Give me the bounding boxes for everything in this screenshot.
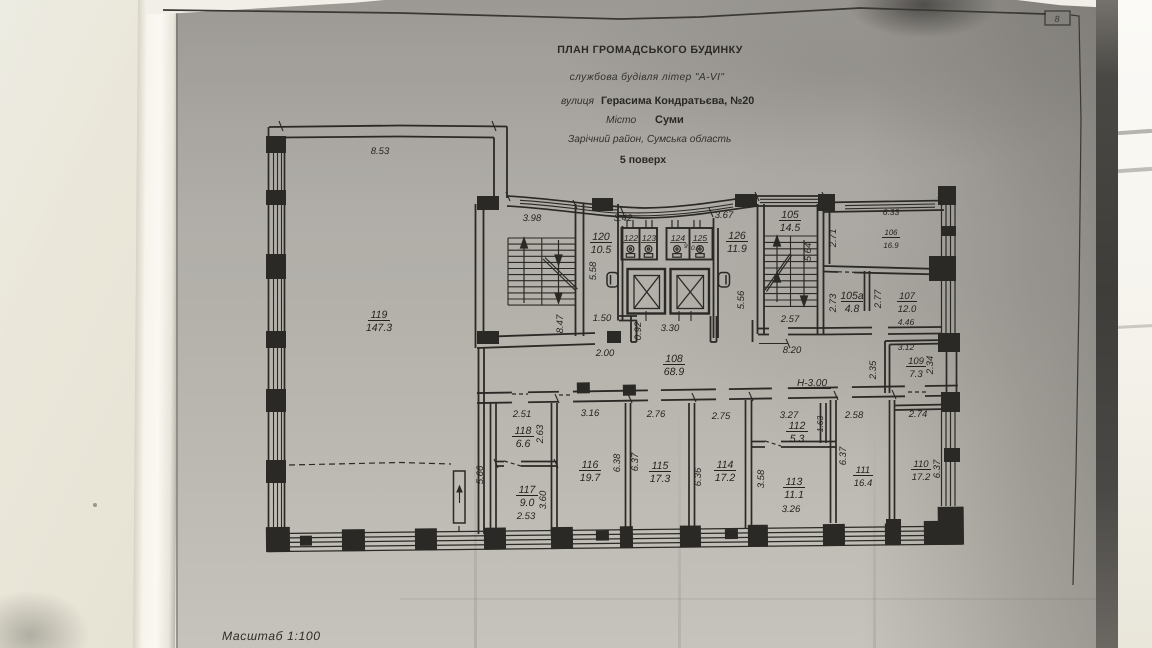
svg-text:5.66: 5.66 (475, 465, 486, 484)
svg-text:вулиця: вулиця (561, 96, 594, 107)
svg-text:2.00: 2.00 (595, 348, 615, 359)
svg-text:14.5: 14.5 (780, 222, 801, 234)
svg-text:16.9: 16.9 (883, 241, 899, 250)
svg-text:3.16: 3.16 (581, 408, 600, 419)
svg-text:Місто: Місто (606, 115, 636, 126)
svg-text:3.67: 3.67 (715, 210, 734, 221)
svg-text:Суми: Суми (655, 114, 684, 126)
svg-text:68.9: 68.9 (664, 366, 685, 378)
svg-text:105: 105 (781, 209, 799, 221)
svg-text:9: 9 (684, 243, 688, 250)
svg-text:113: 113 (786, 476, 803, 488)
svg-text:107: 107 (899, 291, 916, 302)
svg-text:17.2: 17.2 (715, 472, 736, 484)
svg-text:Зарічний район, Сумська област: Зарічний район, Сумська область (568, 134, 731, 145)
svg-text:Герасима Кондратьєва, №20: Герасима Кондратьєва, №20 (601, 95, 754, 107)
svg-text:5.56: 5.56 (736, 290, 747, 309)
svg-text:3.58: 3.58 (756, 469, 767, 488)
svg-text:6.36: 6.36 (693, 467, 704, 486)
svg-text:0.9: 0.9 (691, 245, 700, 252)
svg-text:4.8: 4.8 (845, 303, 860, 315)
svg-text:службова будівля літер "А-VI": службова будівля літер "А-VI" (570, 72, 725, 83)
svg-text:5.58: 5.58 (588, 261, 599, 280)
svg-text:6.33: 6.33 (883, 207, 900, 217)
svg-text:2.76: 2.76 (646, 409, 666, 420)
svg-text:125: 125 (693, 233, 707, 243)
svg-text:2.73: 2.73 (828, 293, 839, 313)
svg-text:108: 108 (665, 353, 683, 365)
svg-text:3.98: 3.98 (523, 213, 542, 224)
svg-text:10.5: 10.5 (591, 244, 612, 256)
svg-text:2.34: 2.34 (925, 356, 936, 376)
svg-text:114: 114 (717, 459, 734, 471)
svg-text:112: 112 (789, 420, 806, 432)
svg-text:3.30: 3.30 (661, 323, 680, 334)
svg-text:124: 124 (671, 233, 685, 243)
svg-text:11.9: 11.9 (727, 243, 747, 255)
svg-text:117: 117 (519, 484, 537, 496)
svg-text:122: 122 (624, 233, 638, 243)
svg-text:105а: 105а (840, 290, 864, 302)
svg-text:110: 110 (913, 459, 929, 470)
svg-text:2.71: 2.71 (828, 229, 839, 249)
svg-text:5.64: 5.64 (803, 243, 814, 262)
svg-text:4.46: 4.46 (898, 317, 915, 327)
svg-text:2.35: 2.35 (868, 360, 879, 380)
svg-text:6.38: 6.38 (612, 453, 623, 472)
svg-text:6.6: 6.6 (516, 438, 531, 450)
svg-text:6.37: 6.37 (630, 452, 641, 471)
svg-text:19.7: 19.7 (580, 472, 602, 484)
svg-text:6.37: 6.37 (932, 459, 943, 478)
svg-text:17.3: 17.3 (650, 473, 671, 485)
svg-text:3.42: 3.42 (614, 213, 633, 224)
svg-text:147.3: 147.3 (366, 322, 392, 334)
svg-text:12.0: 12.0 (898, 304, 917, 315)
svg-text:11.1: 11.1 (784, 489, 804, 501)
svg-text:ПЛАН ГРОМАДСЬКОГО БУДИНКУ: ПЛАН ГРОМАДСЬКОГО БУДИНКУ (557, 44, 742, 56)
svg-text:Масштаб 1:100: Масштаб 1:100 (222, 629, 321, 643)
svg-text:2.63: 2.63 (535, 424, 546, 444)
svg-text:1.63: 1.63 (815, 415, 825, 432)
svg-text:8.53: 8.53 (371, 146, 390, 157)
svg-text:3.26: 3.26 (782, 504, 801, 515)
svg-text:123: 123 (642, 233, 656, 243)
svg-text:17.2: 17.2 (912, 472, 931, 483)
svg-text:2.77: 2.77 (873, 289, 884, 309)
svg-text:111: 111 (856, 465, 870, 476)
svg-text:3.12: 3.12 (898, 342, 915, 352)
svg-text:Н-3.00: Н-3.00 (797, 378, 827, 389)
svg-text:1.50: 1.50 (593, 313, 612, 324)
svg-text:2.58: 2.58 (844, 410, 864, 421)
svg-text:2.51: 2.51 (512, 409, 532, 420)
svg-text:2.74: 2.74 (908, 409, 928, 420)
svg-text:8: 8 (1054, 14, 1059, 24)
svg-text:6.37: 6.37 (838, 446, 849, 465)
svg-text:16.4: 16.4 (854, 478, 873, 489)
svg-text:5.3: 5.3 (790, 433, 805, 445)
svg-text:7.3: 7.3 (909, 369, 923, 380)
svg-text:109: 109 (908, 356, 925, 367)
svg-text:119: 119 (371, 309, 388, 321)
svg-text:116: 116 (582, 459, 599, 471)
svg-text:120: 120 (592, 231, 610, 243)
svg-text:115: 115 (652, 460, 669, 472)
svg-text:2.57: 2.57 (780, 314, 800, 325)
svg-text:118: 118 (515, 425, 532, 437)
svg-text:2.75: 2.75 (711, 411, 731, 422)
svg-text:0.92: 0.92 (633, 321, 644, 340)
svg-text:9.0: 9.0 (520, 497, 535, 509)
svg-text:8.47: 8.47 (555, 314, 566, 333)
svg-text:106: 106 (884, 228, 898, 237)
svg-text:3.27: 3.27 (780, 410, 799, 421)
svg-text:5 поверх: 5 поверх (620, 154, 666, 166)
svg-text:3.60: 3.60 (538, 490, 549, 509)
svg-text:2.53: 2.53 (516, 511, 536, 522)
svg-text:8.20: 8.20 (783, 345, 802, 356)
svg-text:126: 126 (728, 230, 746, 242)
